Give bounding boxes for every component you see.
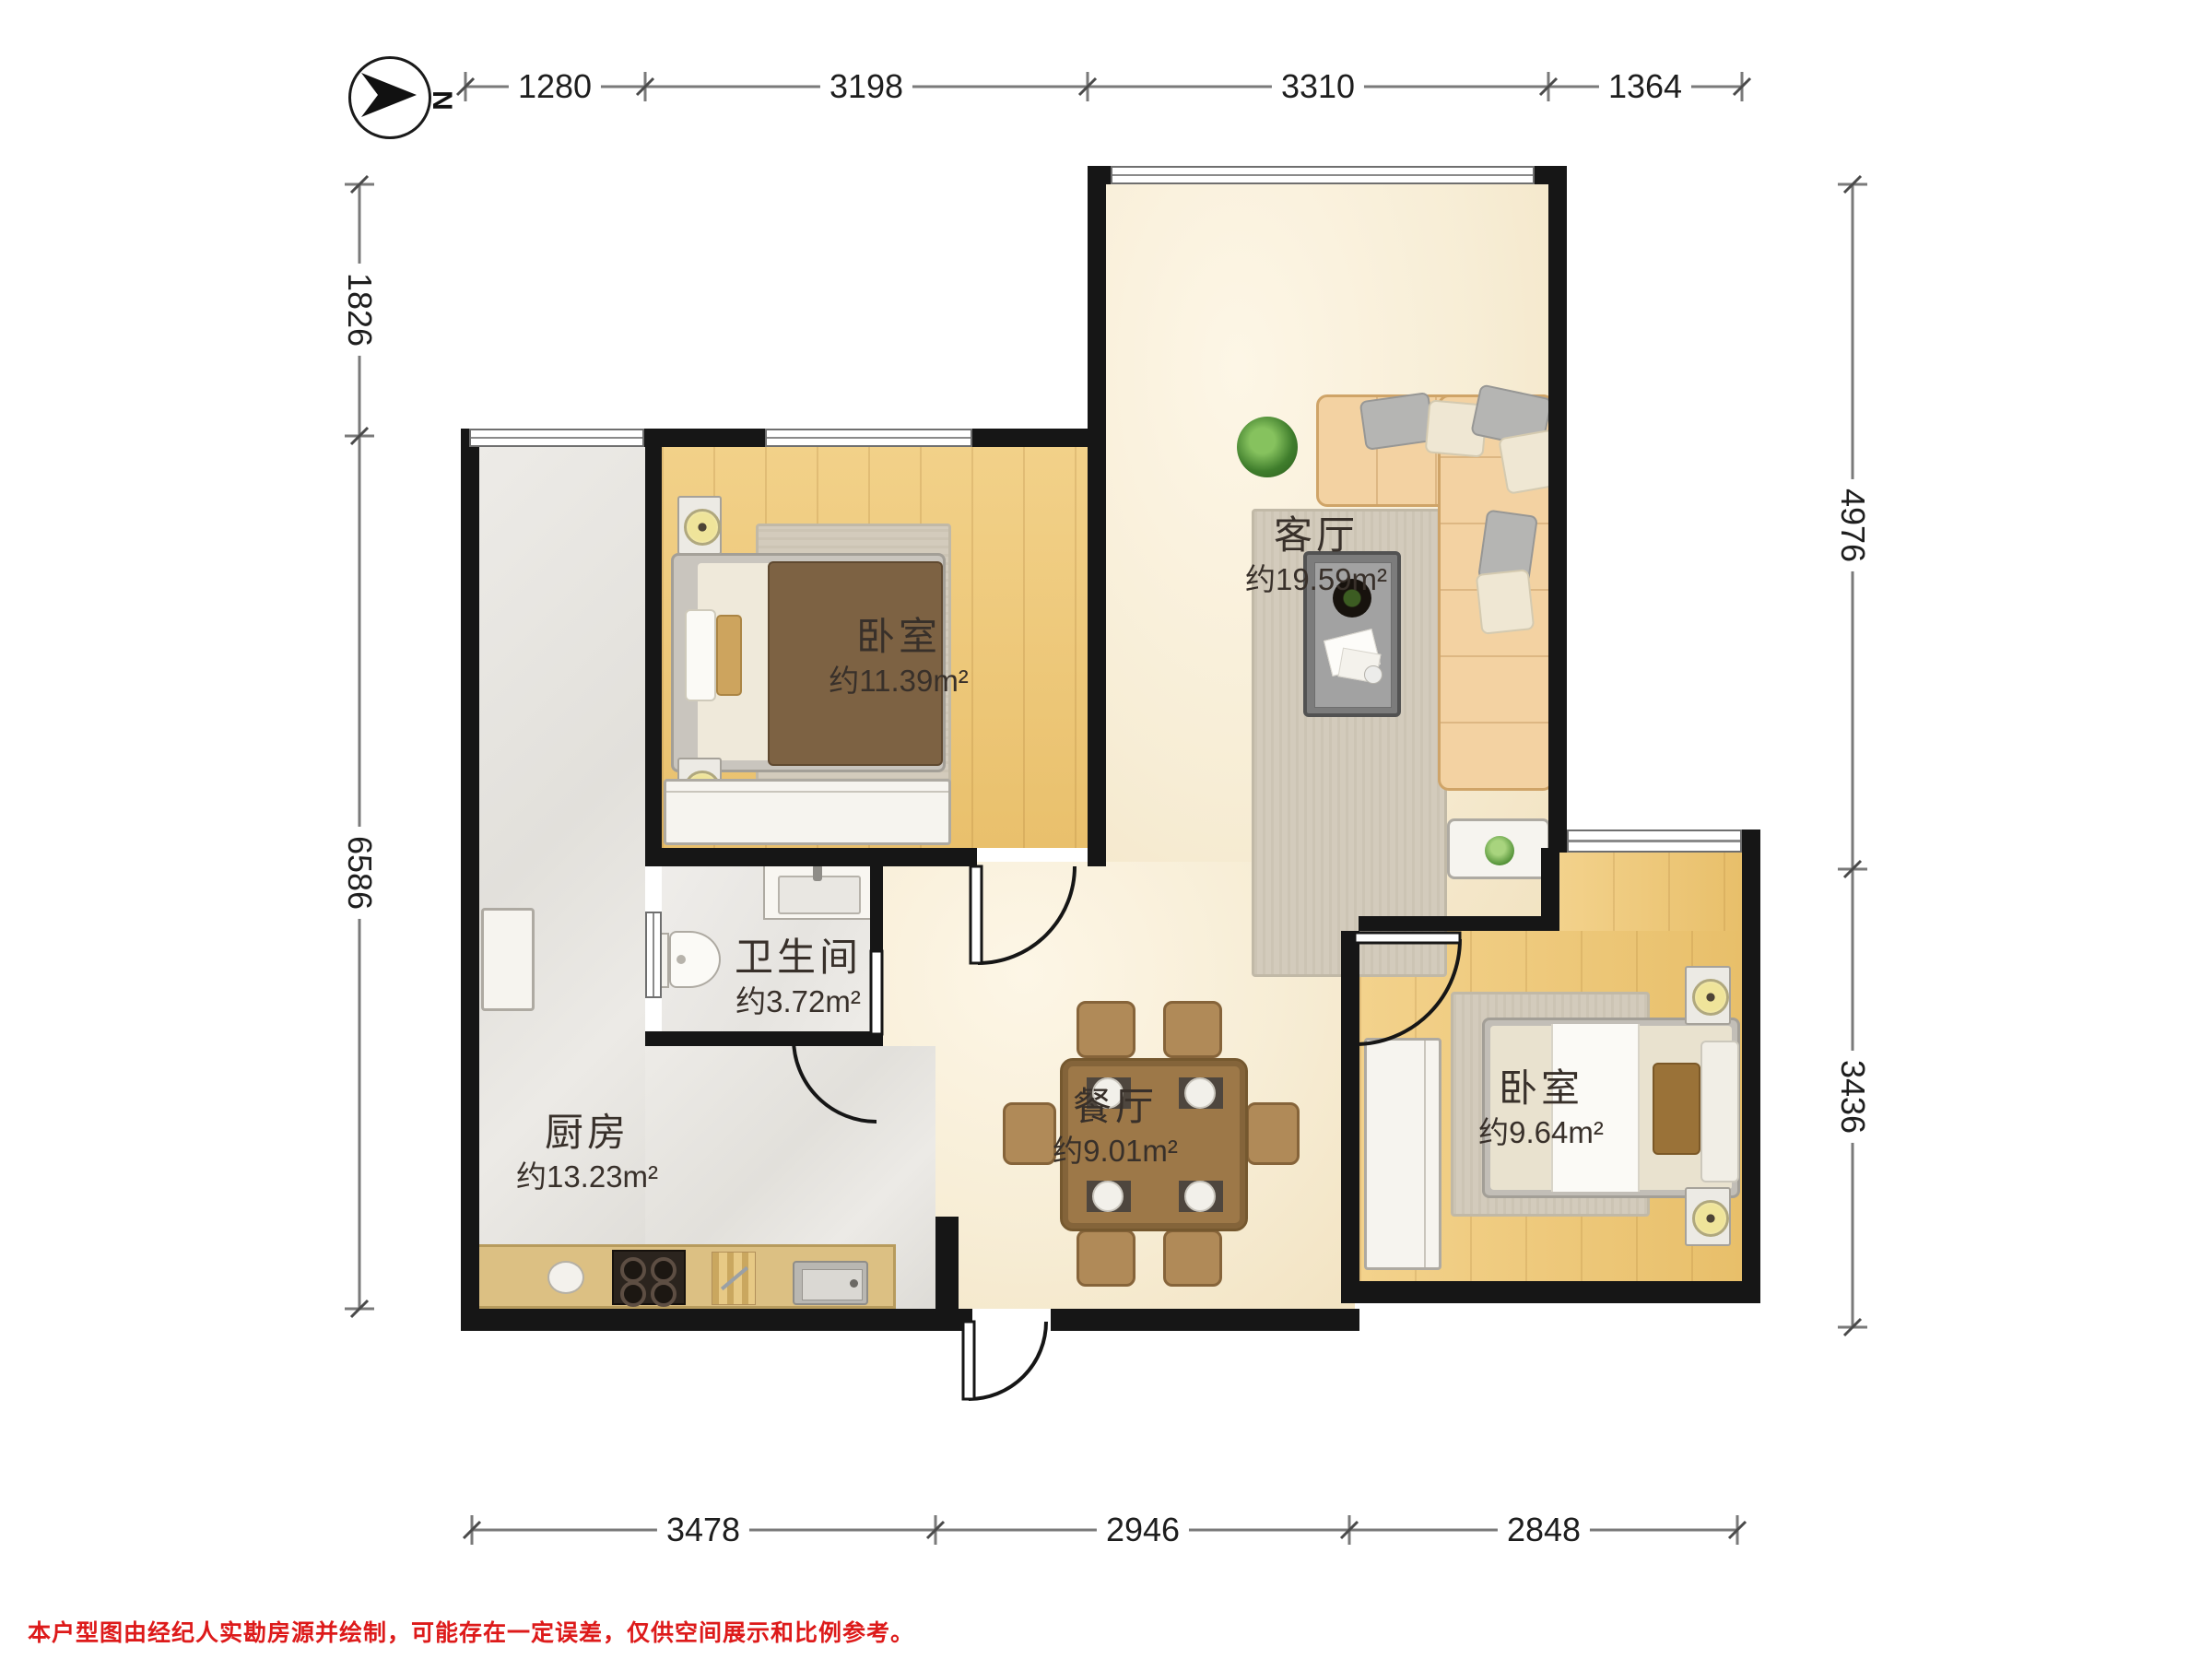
room-area: 约19.59m² [1245, 560, 1387, 598]
room-area: 约9.64m² [1478, 1113, 1604, 1151]
disclaimer-text: 本户型图由经纪人实勘房源并绘制，可能存在一定误差，仅供空间展示和比例参考。 [28, 1615, 914, 1648]
room-name: 卧室 [1478, 1065, 1604, 1113]
compass-north-label: N [426, 90, 457, 111]
dim-bottom-1: 3478 [657, 1511, 749, 1549]
dim-right-2: 3436 [1833, 1051, 1872, 1143]
dim-left-2: 6586 [340, 827, 379, 919]
room-name: 厨房 [516, 1109, 658, 1158]
room-area: 约11.39m² [829, 662, 969, 700]
dim-top-1: 1280 [509, 67, 601, 106]
room-name: 卫生间 [735, 934, 862, 982]
room-area: 约13.23m² [516, 1158, 658, 1195]
room-label-bedroom-right: 卧室 约9.64m² [1478, 1065, 1604, 1151]
dim-top-3: 3310 [1272, 67, 1364, 106]
room-label-kitchen: 厨房 约13.23m² [516, 1109, 658, 1195]
floor-plan: 1280 3198 3310 1364 1826 6586 4976 3436 … [0, 0, 2212, 1659]
room-label-living-room: 客厅 约19.59m² [1245, 512, 1387, 598]
compass [348, 56, 431, 139]
dim-bottom-3: 2848 [1498, 1511, 1590, 1549]
room-name: 卧室 [829, 613, 969, 662]
dim-right-1: 4976 [1833, 479, 1872, 571]
room-label-bedroom-top: 卧室 约11.39m² [829, 613, 969, 700]
dimension-lines [0, 0, 2212, 1659]
dim-top-4: 1364 [1599, 67, 1691, 106]
room-area: 约9.01m² [1053, 1132, 1178, 1170]
dim-bottom-2: 2946 [1097, 1511, 1189, 1549]
room-label-bathroom: 卫生间 约3.72m² [735, 934, 862, 1020]
room-name: 客厅 [1245, 512, 1387, 560]
room-name: 餐厅 [1053, 1083, 1178, 1132]
dim-top-2: 3198 [820, 67, 912, 106]
dim-left-1: 1826 [340, 264, 379, 356]
compass-arrow-icon [348, 56, 426, 134]
room-label-dining-room: 餐厅 约9.01m² [1053, 1083, 1178, 1170]
room-area: 约3.72m² [735, 982, 862, 1020]
